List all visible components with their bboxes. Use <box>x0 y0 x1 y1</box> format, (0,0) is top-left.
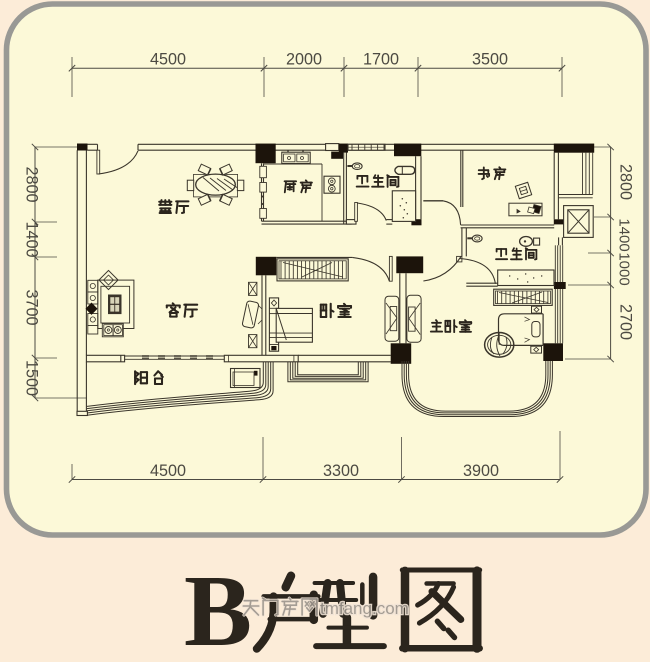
svg-text:3700: 3700 <box>23 289 41 325</box>
svg-text:tmfang.com: tmfang.com <box>320 599 409 618</box>
svg-text:1000: 1000 <box>616 252 633 285</box>
svg-text:3500: 3500 <box>472 50 508 68</box>
svg-text:3900: 3900 <box>463 462 499 480</box>
svg-text:3300: 3300 <box>323 462 359 480</box>
svg-text:1500: 1500 <box>23 360 41 396</box>
svg-text:2700: 2700 <box>617 304 635 340</box>
svg-text:1400: 1400 <box>23 221 41 257</box>
svg-text:2800: 2800 <box>23 166 41 202</box>
svg-text:4500: 4500 <box>150 50 186 68</box>
svg-text:B: B <box>184 555 252 662</box>
svg-text:2800: 2800 <box>617 164 635 200</box>
svg-text:1400: 1400 <box>616 218 633 251</box>
svg-text:4500: 4500 <box>150 462 186 480</box>
svg-text:2000: 2000 <box>286 50 322 68</box>
svg-text:1700: 1700 <box>363 50 399 68</box>
